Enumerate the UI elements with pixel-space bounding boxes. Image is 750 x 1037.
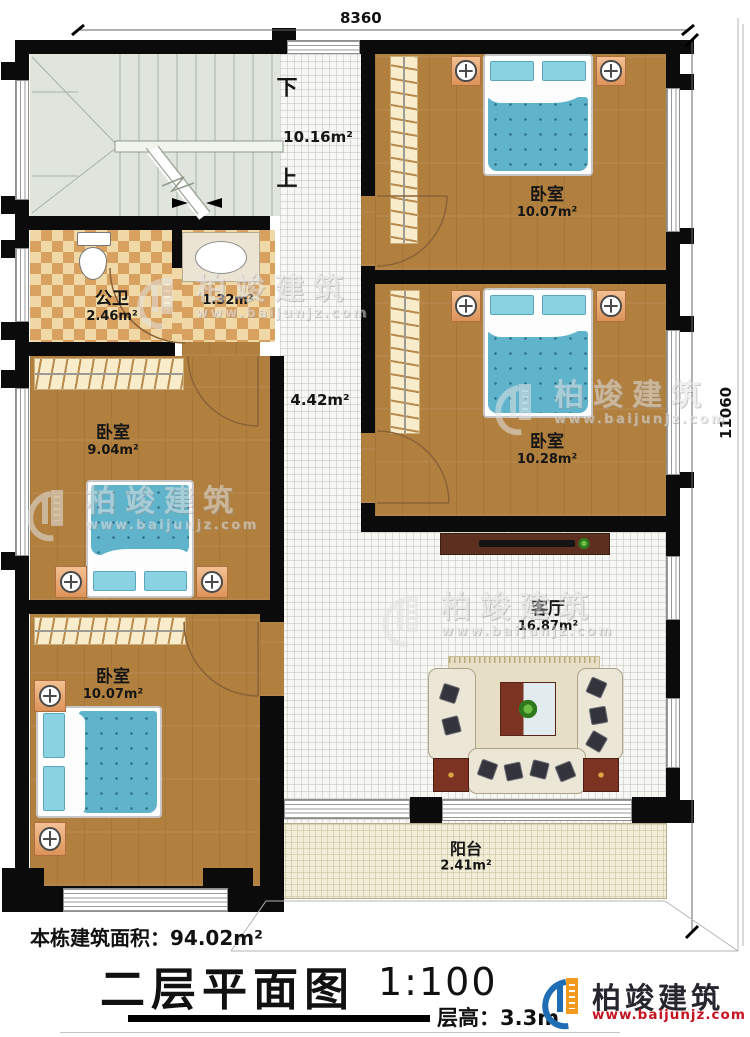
toilet-tank [77,232,111,246]
footer-divider [60,1032,620,1033]
pillows [488,293,588,317]
plant-icon [517,698,539,720]
room-label-balcony: 阳台 2.41m² [440,840,491,875]
nightstand [34,680,66,712]
toilet [77,232,109,278]
building-area-text: 本栋建筑面积：94.02m² [30,922,263,951]
room-area: 9.04m² [87,443,138,459]
wall-pilaster [272,28,296,40]
plan-scale: 1:100 [378,960,498,1004]
cushion [585,676,607,698]
cushion [589,706,609,726]
wall-pilaster [1,552,15,570]
nightstand [196,566,228,598]
room-area: 10.28m² [517,452,577,468]
cushion [585,730,608,753]
dim-right-label: 11060 [717,387,735,439]
room-name: 阳台 [440,840,491,859]
door-opening [182,342,260,356]
coffee-table [500,682,556,736]
nightstand [451,56,481,86]
room-area: 10.07m² [83,687,143,703]
lamp-icon [201,571,224,594]
room-label-bedroom-tr: 卧室 10.07m² [517,185,577,221]
wardrobe-tr [390,56,418,244]
wall-pilaster [1,196,15,214]
window [15,388,29,556]
cushion [554,760,576,782]
wash-counter [182,232,260,282]
door-opening [172,268,182,342]
stairs-down-label: 下 [277,75,298,100]
bed-sheet [67,711,85,813]
pillow [41,711,67,760]
hallway-floor [280,54,361,532]
wall-segment [361,516,680,532]
room-name: 公卫 [86,289,137,309]
sofa-bottom [468,748,586,794]
room-label-bedroom-ml: 卧室 9.04m² [87,423,138,459]
floor-plan-canvas: 下 10.16m² 上 4.42m² 公卫 2.46m² 1.32m² 卧室 1… [0,0,750,1037]
wall-pilaster [203,868,253,886]
bed-mr [483,288,593,418]
title-underline [128,1015,430,1022]
room-area: 2.46m² [86,309,137,325]
dim-top-label: 8360 [340,9,382,27]
pillow [540,59,588,83]
door-opening [361,196,375,266]
window [666,556,680,620]
cushion [529,759,550,780]
window [15,248,29,322]
wall-pilaster [680,472,694,488]
side-table [583,758,619,792]
wall-segment [632,797,680,823]
cushion [439,683,460,704]
wall-segment [15,342,175,356]
wall-pilaster [1,240,15,258]
brand-logo-icon [543,972,593,1026]
stairs-area-label: 10.16m² [283,128,353,146]
wall-pilaster [1,370,15,388]
window [287,40,360,54]
window [666,698,680,768]
bed-tr [483,54,593,176]
wardrobe-ml [34,358,184,390]
bed-duvet [79,711,157,813]
wall-pilaster [680,228,694,244]
room-name: 卧室 [83,667,143,687]
wash-basin [195,241,247,274]
sofa-left [428,668,476,760]
wardrobe-mr [390,290,420,434]
wall-segment [361,266,375,270]
wall-pilaster [1,62,15,80]
toilet-bowl [79,247,107,280]
window [284,799,410,819]
room-area: 10.07m² [517,205,577,221]
cushion [477,759,499,781]
nightstand [596,290,626,322]
lamp-icon [60,571,83,594]
pillows [488,59,588,83]
lamp-icon [455,60,476,81]
lamp-icon [39,827,62,851]
wall-segment [15,600,284,614]
wall-segment [361,284,375,433]
wall-pilaster [1,322,15,340]
bed-bl [36,706,162,818]
wall-segment [361,270,680,284]
bed-sheet [91,549,189,569]
room-name: 卧室 [517,185,577,205]
lamp-icon [600,295,621,318]
side-table [433,758,469,792]
staircase-floor [30,54,280,216]
nightstand [451,290,481,322]
room-label-bedroom-mr: 卧室 10.28m² [517,432,577,468]
pillow [488,59,536,83]
sofa-right [577,668,623,760]
wall-segment [270,356,284,600]
window [666,330,680,475]
stairs-up-label: 上 [277,166,298,191]
balcony-sliding-door [442,799,632,821]
nightstand [55,566,87,598]
room-area: 1.32m² [202,293,253,309]
wardrobe-bl [34,617,186,645]
bed-duvet [488,331,588,413]
wall-pilaster [680,74,694,90]
bed-duvet [488,97,588,171]
door-opening [260,622,284,696]
brand-website: www.baijunjz.com [592,1007,746,1023]
room-area: 16.87m² [518,619,578,635]
wall-pilaster [2,868,44,912]
dim-tick [72,25,694,35]
wall-segment [260,614,284,622]
room-area: 2.41m² [440,859,491,875]
wall-segment [260,696,284,886]
door-opening [361,433,375,503]
pillow [91,569,138,593]
room-label-bathroom: 公卫 2.46m² [86,289,137,325]
wall-pilaster [680,800,694,823]
window [15,80,29,200]
bed-ml [86,480,194,598]
wall-segment [172,230,182,268]
pillow [41,764,67,813]
cushion [503,761,523,781]
room-label-wash: 1.32m² [202,293,253,309]
room-name: 卧室 [87,423,138,443]
pillow [142,569,189,593]
window [63,888,228,912]
room-label-bedroom-bl: 卧室 10.07m² [83,667,143,703]
wall-segment [410,797,442,823]
wall-segment [15,216,270,230]
room-label-living: 客厅 16.87m² [518,599,578,635]
tv-cabinet [440,533,610,555]
pillow [488,293,536,317]
wall-segment [361,54,375,196]
hall-area-label: 4.42m² [290,391,349,409]
window [666,88,680,232]
wall-segment [361,503,375,516]
wall-pilaster [680,316,694,332]
lamp-icon [39,685,62,708]
cushion [441,715,462,736]
nightstand [596,56,626,86]
nightstand [34,822,66,856]
room-name: 卧室 [517,432,577,452]
room-name: 客厅 [518,599,578,619]
pillows [91,569,189,593]
pillows [41,711,67,813]
bed-duvet [91,485,189,555]
pillow [540,293,588,317]
plan-title: 二层平面图 [100,953,355,1018]
plant-icon [577,537,591,550]
lamp-icon [455,295,476,318]
tv-icon [479,540,575,547]
lamp-icon [600,60,621,81]
